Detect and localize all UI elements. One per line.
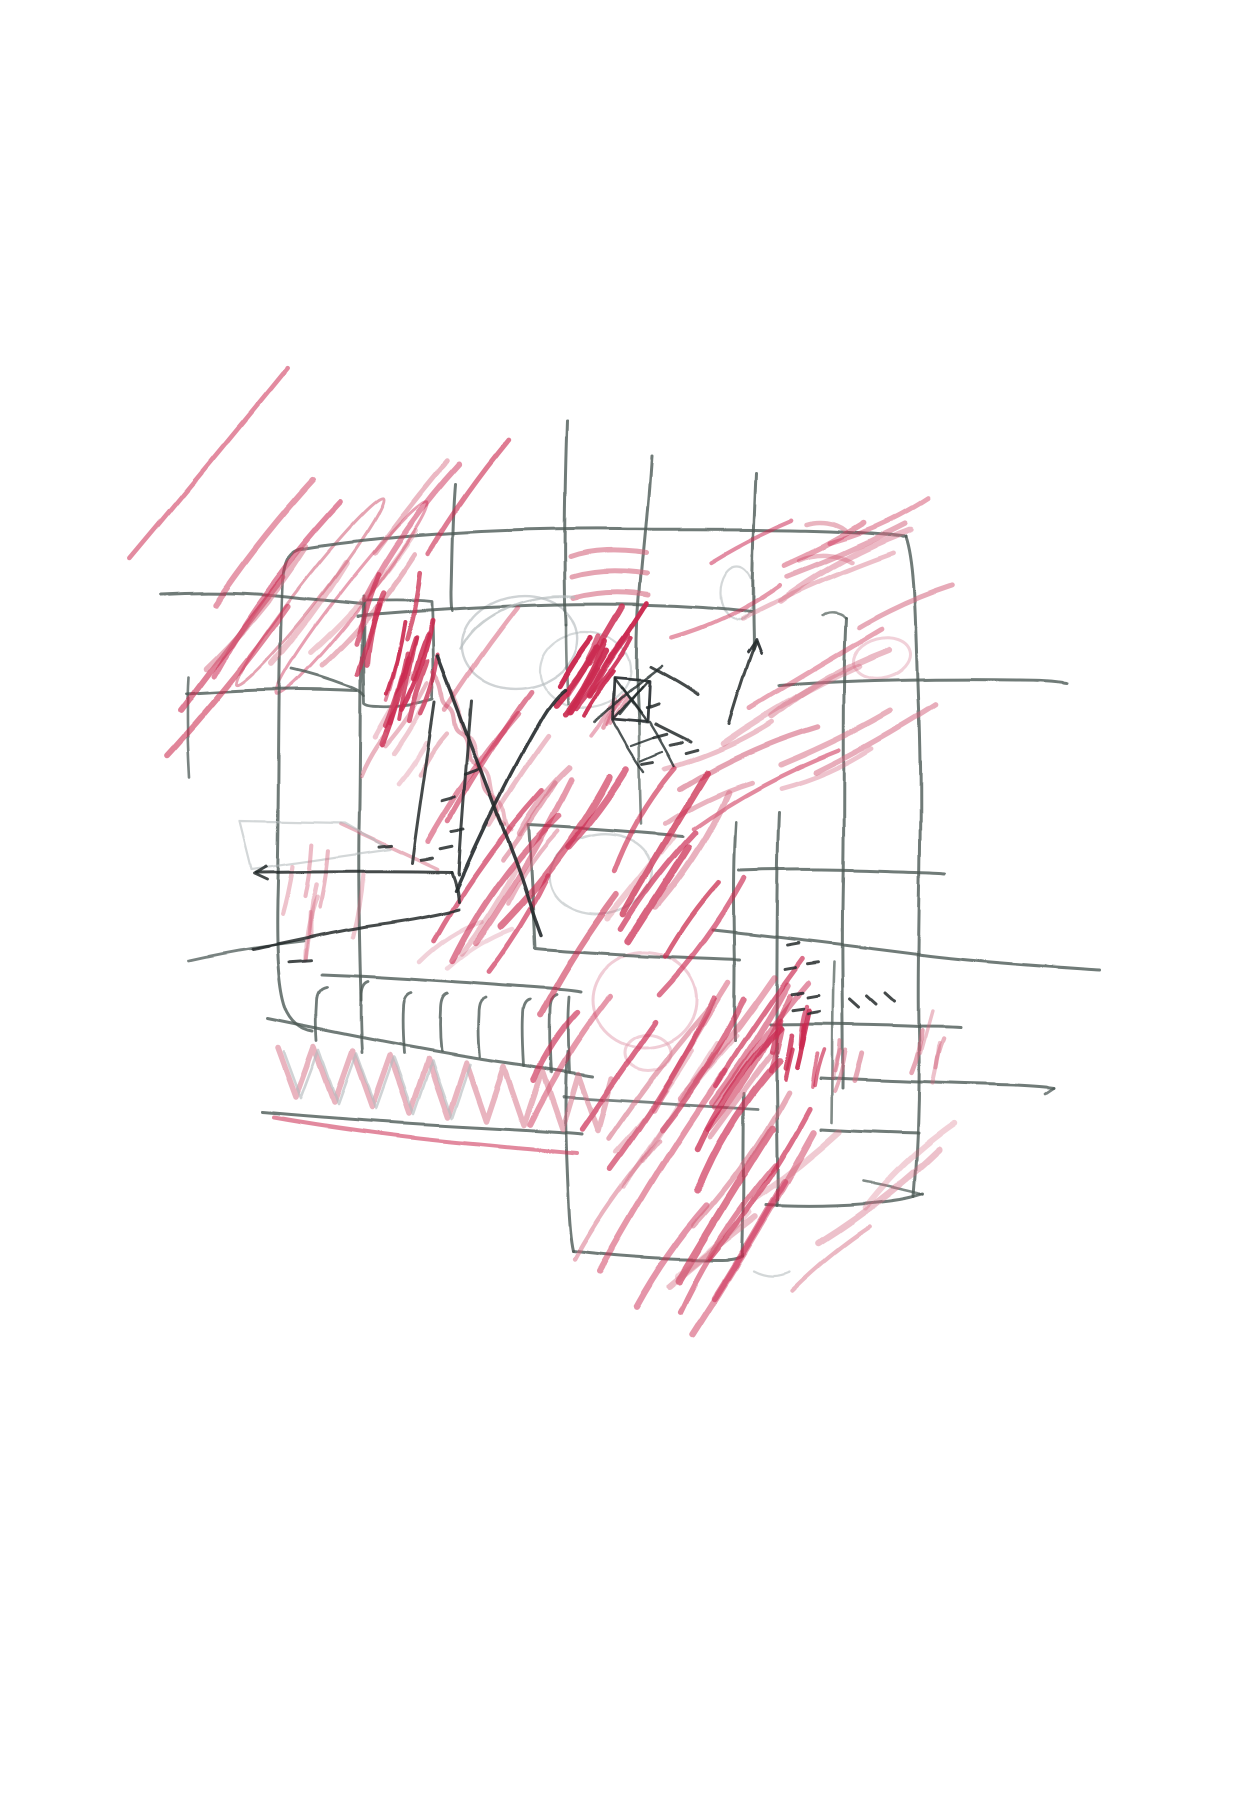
tick-dash <box>686 750 698 753</box>
pencil-stroke <box>550 995 557 1073</box>
pencil-stroke <box>766 1194 923 1206</box>
pencil-stroke <box>523 1000 530 1066</box>
tick-dash <box>643 762 654 764</box>
pencil-stroke <box>570 550 646 557</box>
crayon-hatch-stroke <box>428 440 508 553</box>
pencil-stroke <box>842 618 846 1088</box>
crayon-hatch-stroke <box>672 585 781 638</box>
tick-dash <box>452 830 464 832</box>
tick-dash <box>289 960 311 962</box>
pencil-stroke <box>770 1024 960 1027</box>
tick-dash <box>441 847 453 849</box>
ink-stroke <box>641 752 662 761</box>
ink-stroke <box>631 738 653 746</box>
guide-ellipse <box>849 631 915 685</box>
crayon-hatch-stroke <box>836 1041 841 1072</box>
crayon-hatch-stroke <box>282 866 292 913</box>
pencil-stroke <box>239 821 390 869</box>
crayon-hatch-stroke <box>679 1128 773 1281</box>
drawing-layers <box>130 369 1099 1334</box>
crayon-hatch-stroke <box>781 711 891 765</box>
tick-dash <box>868 996 877 1004</box>
pencil-stroke <box>572 571 647 577</box>
tick-dash <box>421 858 433 860</box>
tick-dash <box>809 1011 820 1013</box>
crayon-hatch-stroke <box>501 777 610 926</box>
tick-dash <box>379 845 391 846</box>
pencil-stroke <box>713 930 1099 970</box>
crayon-hatch-stroke <box>215 480 313 604</box>
pencil-stroke <box>753 474 756 650</box>
tick-dash <box>670 743 682 745</box>
crayon-hatch-stroke <box>819 1150 939 1244</box>
tick-dash <box>787 943 799 945</box>
ink-stroke <box>729 642 756 724</box>
pencil-stroke <box>440 993 447 1051</box>
tick-dash <box>793 1008 804 1010</box>
ink-stroke <box>256 871 452 872</box>
crayon-hatch-stroke <box>866 1124 955 1208</box>
pencil-stroke <box>452 484 456 611</box>
ink-stroke <box>651 667 698 695</box>
crayon-hatch-stroke <box>130 369 287 559</box>
pencil-stroke <box>361 981 368 1053</box>
pencil-stroke <box>316 987 327 1041</box>
crayon-hatch-stroke <box>855 1053 862 1081</box>
tick-dash <box>851 999 860 1007</box>
tick-dash <box>886 993 895 1001</box>
tick-dash <box>808 962 819 964</box>
crayon-hatch-stroke <box>933 1043 940 1083</box>
pencil-stroke <box>568 997 569 1073</box>
crayon-hatch-stroke <box>362 735 386 777</box>
crayon-hatch-stroke <box>621 832 695 929</box>
pencil-stroke <box>479 997 486 1057</box>
sketch-page: freehand-architectural-concept-sketch <box>0 0 1260 1801</box>
tick-dash <box>808 995 819 997</box>
pencil-stroke <box>190 941 303 960</box>
crayon-hatch-stroke <box>859 585 952 627</box>
crayon-hatch-stroke <box>167 606 288 755</box>
pencil-stroke <box>906 537 920 1197</box>
crayon-hatch-stroke <box>665 722 773 769</box>
pencil-stroke <box>403 992 411 1054</box>
tick-dash <box>792 992 803 994</box>
tick-dash <box>785 967 796 969</box>
crayon-hatch-stroke <box>608 836 674 919</box>
crayon-hatch-stroke <box>750 629 882 709</box>
pencil-stroke <box>823 613 846 618</box>
crayon-hatch-stroke <box>659 878 744 995</box>
pencil-stroke <box>753 1271 790 1276</box>
crayon-hatch-stroke <box>666 883 719 957</box>
pencil-stroke <box>186 690 356 694</box>
pencil-stroke <box>565 420 567 624</box>
pencil-stroke <box>639 724 641 824</box>
crayon-hatch-stroke <box>614 768 674 871</box>
pencil-stroke <box>832 962 834 1122</box>
crayon-hatch-stroke <box>407 573 421 640</box>
hand-drawn-sketch <box>0 0 1260 1801</box>
pencil-stroke <box>808 522 846 530</box>
